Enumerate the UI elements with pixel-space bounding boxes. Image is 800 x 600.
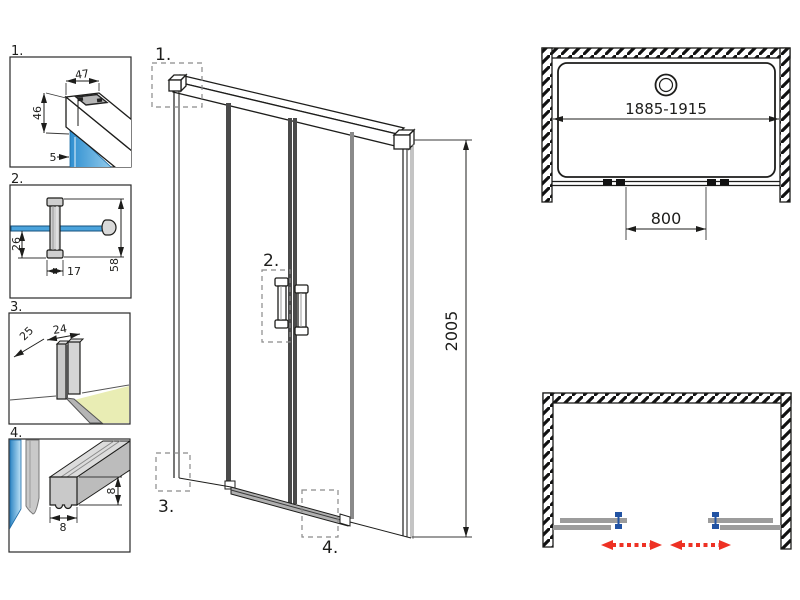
dim-profile-width: 47 — [74, 67, 90, 82]
wall-left — [543, 393, 553, 547]
callout-label-1: 1. — [155, 45, 171, 65]
guide-wall-right — [68, 342, 80, 394]
roller-mark — [712, 512, 719, 517]
wall-knob — [102, 220, 116, 235]
roller-mark — [615, 512, 622, 517]
sliding-panels-left — [553, 512, 627, 530]
detail-1-drawing — [66, 93, 165, 183]
roller-mark — [712, 524, 719, 529]
wall-left — [542, 48, 552, 202]
height-dimension: 2005 — [412, 140, 472, 537]
callout-label-2: 2. — [263, 251, 279, 271]
roller-mark — [615, 524, 622, 529]
wall-back — [542, 48, 790, 58]
technical-drawing-canvas: 1. 47 46 5 2. — [0, 0, 800, 600]
wall-right — [781, 393, 791, 549]
dim-handle-length: 58 — [108, 258, 121, 272]
center-divider-left — [288, 118, 292, 504]
profile-strip — [26, 440, 39, 514]
drain-outer — [656, 75, 677, 96]
seal-cross-section — [50, 477, 77, 509]
wall-bracket-top-left — [169, 80, 181, 91]
detail-4-bottom-seal: 4. 8 8 — [9, 426, 130, 552]
wall-back — [543, 393, 791, 403]
dim-seal-width: 8 — [60, 521, 67, 534]
callout-label-3: 3. — [158, 497, 174, 517]
dim-profile-height: 46 — [31, 106, 44, 120]
callout-label-4: 4. — [322, 538, 338, 558]
sliding-panels-right — [708, 512, 781, 530]
handle-cap-bottom — [47, 250, 63, 258]
handle-cap-top — [47, 198, 63, 206]
detail-2-handle: 2. 26 17 58 — [10, 172, 131, 298]
dim-handle-offset: 26 — [10, 237, 23, 251]
panel-divider-3 — [350, 132, 354, 519]
dim-glass-thickness: 5 — [50, 151, 57, 164]
panel-divider-1 — [226, 103, 231, 481]
plan-view: 1885-1915 800 — [542, 48, 790, 240]
door-handle-mark — [707, 179, 716, 186]
door-handle-mark — [720, 179, 729, 185]
door-track-line — [552, 179, 780, 186]
door-handle-mark — [616, 179, 625, 186]
dim-opening: 800 — [651, 209, 682, 228]
fixed-panel — [553, 525, 611, 530]
dim-handle-width: 17 — [67, 265, 81, 278]
door-handle-mark — [603, 179, 612, 185]
callout-box-3 — [156, 453, 190, 491]
dim-door-height: 2005 — [442, 311, 461, 352]
sliding-scheme-view — [543, 393, 791, 550]
sliding-panel — [560, 518, 627, 523]
detail-1-top-profile: 1. 47 46 5 — [10, 44, 165, 183]
detail-2-frame — [10, 185, 131, 298]
slide-direction-arrows — [601, 540, 731, 550]
fixed-panel — [720, 525, 781, 530]
wall-right — [780, 48, 790, 202]
dim-width-range: 1885-1915 — [625, 100, 707, 118]
wall-bracket-top-right — [394, 135, 410, 149]
dim-guide-width: 24 — [52, 322, 68, 337]
opening-dimension: 800 — [626, 187, 706, 240]
guide-wall-left — [57, 344, 66, 399]
top-rail-front-face — [173, 81, 397, 146]
handle-bar — [50, 206, 60, 250]
detail-3-bottom-guide: 3. 24 25 — [9, 300, 130, 424]
center-divider-right — [293, 118, 297, 504]
dim-seal-height: 8 — [105, 488, 118, 495]
sliding-panel — [708, 518, 773, 523]
front-view: 1. 2. 3. 4. 2005 — [152, 45, 472, 558]
